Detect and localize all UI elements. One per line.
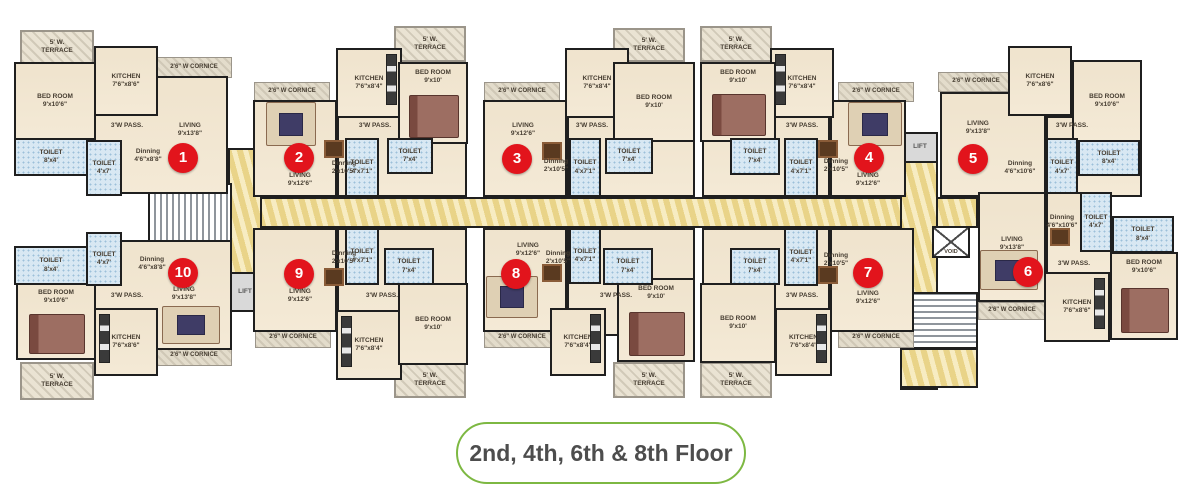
cornice-label: 2'6" W CORNICE — [952, 78, 1000, 86]
unit-number-badge-label: 6 — [1024, 263, 1032, 282]
unit-number-badge: 3 — [502, 144, 532, 174]
room-label: 3'W PASS. — [350, 290, 414, 302]
terrace: 5' W. TERRACE — [394, 362, 466, 398]
cornice: 2'6" W CORNICE — [484, 82, 560, 102]
toilet: TOILET 4'x7' — [1046, 138, 1078, 197]
room-label: 3'W PASS. — [770, 290, 834, 302]
room-label-label: LIVING 9'x12'6" — [511, 122, 535, 138]
toilet: TOILET 4'x7' — [86, 140, 122, 196]
kitchen-counter-icon — [386, 54, 397, 105]
toilet-label: TOILET 7'x4' — [399, 148, 422, 164]
cornice-label: 2'6" W CORNICE — [498, 88, 546, 96]
sofa-icon — [848, 102, 902, 146]
bedroom: BED ROOM 9'x10'6" — [1110, 252, 1178, 340]
toilet-label: TOILET 7'x4' — [617, 258, 640, 274]
room-label-label: 3'W PASS. — [359, 122, 391, 130]
kitchen-label: KITCHEN 7'6"x8'6" — [1026, 73, 1055, 89]
unit-number-badge-label: 5 — [969, 150, 977, 169]
unit-number-badge: 8 — [501, 259, 531, 289]
room-label-label: Dinning 2'x10'5" — [824, 158, 848, 174]
bed-icon — [1121, 288, 1169, 334]
corridor — [900, 348, 978, 388]
terrace: 5' W. TERRACE — [700, 26, 772, 62]
room-label: LIVING 9'x13'8" — [984, 232, 1040, 256]
kitchen-counter-icon — [99, 314, 110, 363]
bedroom: BED ROOM 9'x10' — [700, 283, 776, 363]
table-icon — [177, 315, 204, 335]
terrace: 5' W. TERRACE — [20, 362, 94, 400]
sofa-icon — [162, 306, 220, 344]
terrace: 5' W. TERRACE — [613, 362, 685, 398]
lift: LIFT — [902, 132, 938, 163]
room-label-label: Dinning 2'x10'5" — [332, 250, 356, 266]
cornice-label: 2'6" W CORNICE — [269, 334, 317, 342]
kitchen-label: KITCHEN 7'6"x8'4" — [355, 337, 384, 353]
corridor — [230, 197, 978, 228]
room-label-label: LIVING 9'x12'6" — [288, 288, 312, 304]
room-label-label: 3'W PASS. — [786, 292, 818, 300]
terrace-label: 5' W. TERRACE — [41, 39, 72, 55]
bedroom-label: BED ROOM 9'x10' — [720, 315, 756, 331]
toilet: TOILET 7'x4' — [730, 138, 780, 175]
kitchen: KITCHEN 7'6"x8'6" — [94, 46, 158, 116]
unit-number-badge-label: 9 — [295, 265, 303, 284]
toilet-label: TOILET 4'x7'1" — [790, 159, 813, 175]
kitchen-label: KITCHEN 7'6"x8'4" — [788, 75, 817, 91]
unit-number-badge-label: 8 — [512, 265, 520, 284]
room-label: 3'W PASS. — [584, 290, 648, 302]
terrace: 5' W. TERRACE — [394, 26, 466, 62]
cornice: 2'6" W CORNICE — [938, 72, 1014, 92]
kitchen: KITCHEN 7'6"x8'4" — [336, 48, 402, 118]
terrace-label: 5' W. TERRACE — [414, 36, 445, 52]
room-label: 3'W PASS. — [560, 120, 624, 132]
terrace: 5' W. TERRACE — [700, 362, 772, 398]
room-label: LIVING 9'x13'8" — [950, 116, 1006, 140]
bedroom-label: BED ROOM 9'x10'6" — [1126, 259, 1162, 275]
bed-icon — [29, 314, 86, 354]
room-label-label: 3'W PASS. — [576, 122, 608, 130]
kitchen-counter-icon — [775, 54, 786, 105]
room-label: 3'W PASS. — [770, 120, 834, 132]
toilet-label: TOILET 4'x7' — [93, 160, 116, 176]
cornice: 2'6" W CORNICE — [156, 57, 232, 78]
toilet-label: TOILET 4'x7' — [1051, 159, 1074, 175]
terrace-label: 5' W. TERRACE — [414, 372, 445, 388]
unit-number-badge: 10 — [168, 258, 198, 288]
cornice-label: 2'6" W CORNICE — [498, 334, 546, 342]
toilet: TOILET 8'x4' — [14, 138, 88, 176]
toilet-label: TOILET 8'x4' — [1132, 226, 1155, 242]
toilet: TOILET 7'x4' — [384, 248, 434, 285]
room-label: LIVING 9'x12'6" — [840, 286, 896, 310]
toilet-label: TOILET 8'x4' — [40, 257, 63, 273]
kitchen-label: KITCHEN 7'6"x8'4" — [355, 75, 384, 91]
toilet: TOILET 4'x7' — [86, 232, 122, 286]
terrace: 5' W. TERRACE — [20, 30, 94, 64]
terrace-label: 5' W. TERRACE — [720, 36, 751, 52]
bed-icon — [409, 95, 459, 138]
room-label-label: LIVING 9'x13'8" — [178, 122, 202, 138]
room-label: Dinning 2'x10'5" — [812, 154, 860, 178]
room-label-label: Dinning 4'6"x10'6" — [1005, 160, 1036, 176]
room-label: LIVING 9'x13'8" — [158, 118, 222, 142]
unit-number-badge-label: 10 — [175, 264, 192, 283]
cornice: 2'6" W CORNICE — [254, 82, 330, 102]
sofa-icon — [266, 102, 316, 146]
unit-number-badge-label: 7 — [864, 264, 872, 283]
terrace-label: 5' W. TERRACE — [633, 372, 664, 388]
bedroom-label: BED ROOM 9'x10' — [415, 69, 451, 85]
room-label: Dinning 2'x10'5" — [532, 154, 580, 178]
cornice-label: 2'6" W CORNICE — [170, 64, 218, 72]
room-label-label: LIVING 9'x13'8" — [966, 120, 990, 136]
room-label-label: Dinning 2'x10'5" — [332, 160, 356, 176]
terrace-label: 5' W. TERRACE — [41, 373, 72, 389]
toilet-label: TOILET 8'x4' — [40, 149, 63, 165]
bedroom-label: BED ROOM 9'x10'6" — [37, 93, 73, 109]
cornice: 2'6" W CORNICE — [838, 82, 914, 102]
toilet: TOILET 7'x4' — [730, 248, 780, 285]
room-label-label: Dinning 2'x10'5" — [546, 250, 570, 266]
room-label: 3'W PASS. — [1044, 258, 1104, 270]
unit-number-badge-label: 2 — [295, 149, 303, 168]
room-label-label: 3'W PASS. — [786, 122, 818, 130]
kitchen-label: KITCHEN 7'6"x8'4" — [789, 334, 818, 350]
terrace-label: 5' W. TERRACE — [720, 372, 751, 388]
unit-number-badge: 6 — [1013, 257, 1043, 287]
kitchen: KITCHEN 7'6"x8'4" — [336, 310, 402, 380]
bed-icon — [712, 94, 766, 136]
bedroom: BED ROOM 9'x10'6" — [16, 282, 96, 360]
unit-number-badge: 7 — [853, 258, 883, 288]
room-label: Dinning 2'x10'5" — [320, 246, 368, 270]
room-label-label: Dinning 2'x10'5" — [824, 252, 848, 268]
room-label-label: 3'W PASS. — [111, 122, 143, 130]
bedroom: BED ROOM 9'x10' — [398, 62, 468, 144]
floor-plan: LIFTLIFTVOID5' W. TERRACE2'6" W CORNICEK… — [0, 0, 1200, 489]
room-label-label: 3'W PASS. — [600, 292, 632, 300]
unit-number-badge: 4 — [854, 143, 884, 173]
bedroom: BED ROOM 9'x10' — [613, 62, 695, 142]
room-label-label: Dinning 2'x10'5" — [544, 158, 568, 174]
unit-number-badge-label: 3 — [513, 150, 521, 169]
bedroom-label: BED ROOM 9'x10' — [636, 94, 672, 110]
toilet: TOILET 8'x4' — [1078, 140, 1140, 176]
kitchen: KITCHEN 7'6"x8'6" — [94, 308, 158, 376]
unit-number-badge-label: 1 — [179, 149, 187, 168]
floor-title: 2nd, 4th, 6th & 8th Floor — [469, 440, 732, 467]
lift-label: LIFT — [913, 143, 927, 151]
room-label-label: 3'W PASS. — [1058, 260, 1090, 268]
bedroom-label: BED ROOM 9'x10' — [720, 69, 756, 85]
kitchen: KITCHEN 7'6"x8'4" — [550, 308, 606, 376]
toilet-label: TOILET 7'x4' — [398, 258, 421, 274]
unit-number-badge-label: 4 — [865, 149, 873, 168]
room-label-label: LIVING 9'x13'8" — [172, 286, 196, 302]
kitchen-counter-icon — [816, 314, 827, 363]
room-label-label: LIVING 9'x12'6" — [856, 290, 880, 306]
room-label-label: 3'W PASS. — [1056, 122, 1088, 130]
unit-number-badge: 5 — [958, 144, 988, 174]
toilet-label: TOILET 7'x4' — [618, 148, 641, 164]
terrace-label: 5' W. TERRACE — [633, 37, 664, 53]
toilet-label: TOILET 8'x4' — [1098, 150, 1121, 166]
room-label: 3'W PASS. — [345, 120, 405, 132]
room-label-label: Dinning 4'6"x8'8" — [134, 148, 161, 164]
bedroom: BED ROOM 9'x10' — [700, 62, 776, 142]
kitchen: KITCHEN 7'6"x8'6" — [1008, 46, 1072, 116]
bedroom-label: BED ROOM 9'x10'6" — [1089, 93, 1125, 109]
toilet-label: TOILET 4'x7'1" — [790, 249, 813, 265]
kitchen-label: KITCHEN 7'6"x8'6" — [112, 73, 141, 89]
toilet-label: TOILET 7'x4' — [744, 148, 767, 164]
room-label: Dinning 4'6"x10'6" — [1034, 210, 1090, 234]
lift-label: LIFT — [238, 288, 252, 296]
table-icon — [500, 286, 525, 308]
toilet: TOILET 7'x4' — [605, 138, 653, 174]
toilet: TOILET 8'x4' — [1112, 216, 1174, 253]
cornice-label: 2'6" W CORNICE — [268, 88, 316, 96]
kitchen: KITCHEN 7'6"x8'4" — [775, 308, 832, 376]
bedroom-label: BED ROOM 9'x10' — [415, 316, 451, 332]
room-label-label: 3'W PASS. — [366, 292, 398, 300]
room-label-label: LIVING 9'x12'6" — [288, 172, 312, 188]
kitchen: KITCHEN 7'6"x8'6" — [1044, 272, 1110, 342]
toilet: TOILET 7'x4' — [387, 138, 433, 174]
bedroom-label: BED ROOM 9'x10'6" — [38, 289, 74, 305]
toilet-label: TOILET 7'x4' — [744, 258, 767, 274]
void-shaft: VOID — [932, 226, 970, 258]
room-label: 3'W PASS. — [96, 120, 158, 132]
cornice-label: 2'6" W CORNICE — [852, 334, 900, 342]
kitchen-label: KITCHEN 7'6"x8'6" — [112, 334, 141, 350]
unit-number-badge: 2 — [284, 143, 314, 173]
room-label-label: Dinning 4'6"x8'8" — [138, 256, 165, 272]
cornice: 2'6" W CORNICE — [978, 302, 1046, 320]
table-icon — [279, 113, 303, 136]
toilet: TOILET 7'x4' — [603, 248, 653, 285]
toilet-label: TOILET 4'x7' — [93, 251, 116, 267]
room-label-label: 3'W PASS. — [111, 292, 143, 300]
table-icon — [862, 113, 887, 136]
void-shaft-label: VOID — [944, 249, 957, 256]
kitchen-counter-icon — [1094, 278, 1105, 329]
room-label: 3'W PASS. — [1040, 120, 1104, 132]
room-label: Dinning 2'x10'5" — [534, 246, 582, 270]
unit-number-badge: 1 — [168, 143, 198, 173]
room-label-label: LIVING 9'x13'8" — [1000, 236, 1024, 252]
cornice-label: 2'6" W CORNICE — [170, 352, 218, 360]
room-label: 3'W PASS. — [96, 290, 158, 302]
kitchen-label: KITCHEN 7'6"x8'4" — [564, 334, 593, 350]
room-label: LIVING 9'x12'6" — [495, 118, 551, 142]
room-label-label: Dinning 4'6"x10'6" — [1047, 214, 1078, 230]
unit-number-badge: 9 — [284, 259, 314, 289]
floor-title-pill: 2nd, 4th, 6th & 8th Floor — [456, 422, 746, 484]
room-label: Dinning 4'6"x10'6" — [992, 156, 1048, 180]
bed-icon — [629, 312, 684, 356]
toilet: TOILET 8'x4' — [14, 246, 88, 285]
cornice-label: 2'6" W CORNICE — [852, 88, 900, 96]
room-label: Dinning 2'x10'5" — [320, 156, 368, 180]
kitchen-label: KITCHEN 7'6"x8'4" — [583, 75, 612, 91]
kitchen-counter-icon — [341, 316, 352, 367]
kitchen-counter-icon — [590, 314, 601, 363]
kitchen-label: KITCHEN 7'6"x8'6" — [1063, 299, 1092, 315]
kitchen: KITCHEN 7'6"x8'4" — [770, 48, 834, 118]
bedroom: BED ROOM 9'x10'6" — [14, 62, 96, 140]
cornice-label: 2'6" W CORNICE — [988, 307, 1036, 315]
